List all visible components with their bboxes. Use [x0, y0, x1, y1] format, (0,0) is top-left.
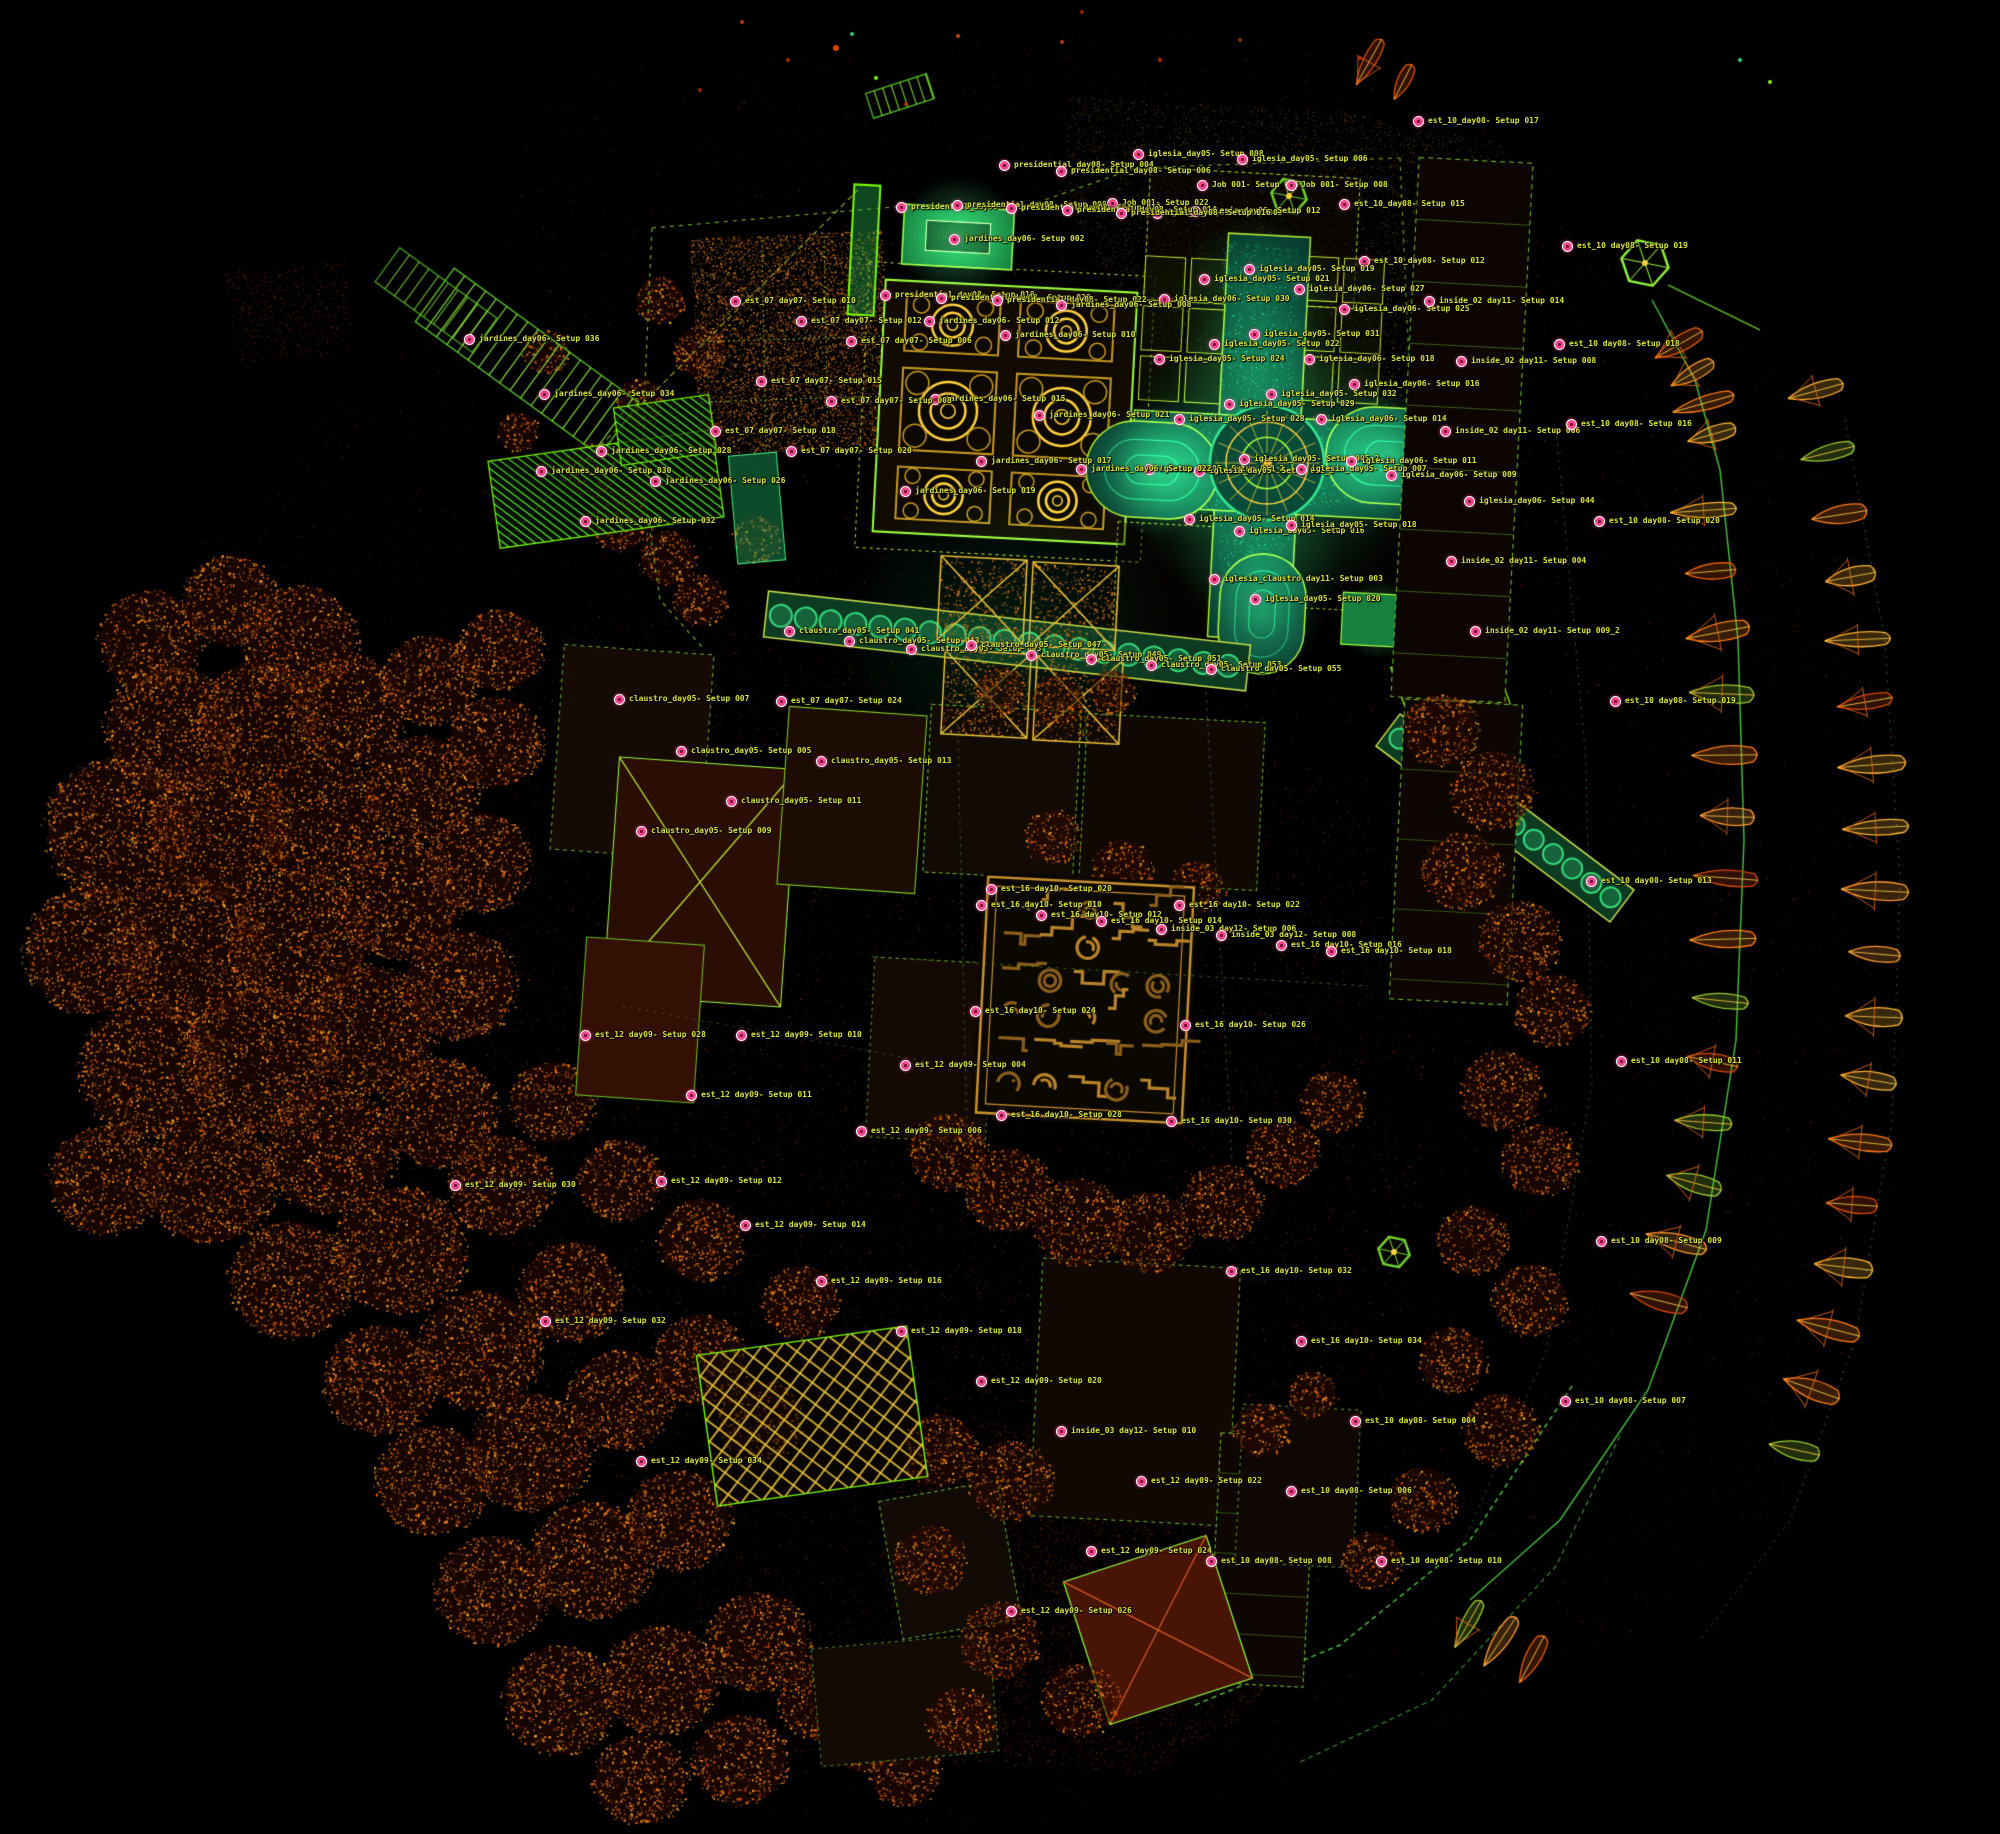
scan-setup-marker-icon: [906, 644, 917, 655]
scan-setup-label: iglesia_claustro day11- Setup 003: [1224, 574, 1383, 583]
scan-setup-marker[interactable]: est_12 day09- Setup 012: [656, 1176, 668, 1188]
scan-setup-marker-icon: [1180, 1020, 1191, 1031]
scan-setup-label: jardines_day06- Setup 034: [554, 389, 674, 398]
scan-setup-label: est_12 day09- Setup 018: [911, 1326, 1022, 1335]
scan-setup-marker-icon: [1339, 304, 1350, 315]
scan-setup-marker-icon: [1216, 930, 1227, 941]
scan-setup-marker[interactable]: est_12 day09- Setup 030: [450, 1180, 462, 1192]
scan-setup-label: est_10 day08- Setup 016: [1581, 419, 1692, 428]
scan-setup-marker[interactable]: est_07 day07- Setup 012: [796, 316, 808, 328]
scan-setup-marker[interactable]: est_16 day10- Setup 022: [1174, 900, 1186, 912]
scan-setup-marker[interactable]: jardines_day06- Setup 019: [900, 486, 912, 498]
scan-setup-marker[interactable]: est_12 day09- Setup 010: [736, 1030, 748, 1042]
scan-setup-label: iglesia_day06- Setup 011: [1361, 456, 1477, 465]
scan-setup-marker[interactable]: est_10 day08- Setup 016: [1566, 419, 1578, 431]
scan-setup-marker[interactable]: iglesia_day05- Setup 019: [1244, 264, 1256, 276]
scan-setup-label: inside_02 day11- Setup 009_2: [1485, 626, 1620, 635]
scan-setup-label: claustro_day05- Setup 005: [691, 746, 811, 755]
scan-setup-marker-icon: [786, 446, 797, 457]
scan-setup-label: presidential_day08- Setup 006: [1071, 166, 1211, 175]
scan-setup-marker[interactable]: presidential_day08- Setup 008: [952, 200, 964, 212]
scan-setup-label: claustro_day05- Setup 007: [629, 694, 749, 703]
scan-setup-marker[interactable]: est_10 day08- Setup 013: [1586, 876, 1598, 888]
scan-setup-marker[interactable]: est_07 day07- Setup 020: [786, 446, 798, 458]
scan-setup-label: est_10 day08- Setup 010: [1391, 1556, 1502, 1565]
scan-setup-marker-icon: [970, 1006, 981, 1017]
scan-setup-marker-icon: [1586, 876, 1597, 887]
scan-setup-marker[interactable]: est_07 day07- Setup 018: [710, 426, 722, 438]
scan-setup-marker-icon: [1000, 330, 1011, 341]
scan-setup-marker[interactable]: iglesia_day05- Setup 020: [1250, 594, 1262, 606]
scan-setup-marker[interactable]: iglesia_day05- Setup 021: [1199, 274, 1211, 286]
scan-setup-label: est_16 day10- Setup 024: [985, 1006, 1096, 1015]
scan-setup-marker[interactable]: jardines_day06- Setup 028: [596, 446, 608, 458]
scan-setup-label: est_12 day09- Setup 012: [671, 1176, 782, 1185]
scan-setup-label: jardines_day06- Setup 008: [1071, 300, 1191, 309]
scan-setup-marker-icon: [1136, 1476, 1147, 1487]
scan-setup-label: est_16 day10- Setup 028: [1011, 1110, 1122, 1119]
scan-setup-marker-icon: [896, 1326, 907, 1337]
scan-setup-marker-icon: [1376, 1556, 1387, 1567]
scan-setup-marker-icon: [1616, 1056, 1627, 1067]
scan-setup-marker[interactable]: est_10 day08- Setup 004: [1350, 1416, 1362, 1428]
scan-setup-marker[interactable]: est_12 day09- Setup 024: [1086, 1546, 1098, 1558]
scan-setup-marker-icon: [1237, 154, 1248, 165]
scan-setup-marker-icon: [1096, 916, 1107, 927]
scan-setup-marker[interactable]: est_07 day07- Setup 010: [730, 296, 742, 308]
scan-setup-label: est_16 day10- Setup 026: [1195, 1020, 1306, 1029]
scan-setup-marker-icon: [976, 1376, 987, 1387]
scan-setup-marker-icon: [986, 884, 997, 895]
scan-setup-marker[interactable]: iglesia_day05- Setup 005_2: [1239, 454, 1251, 466]
scan-setup-marker[interactable]: inside_02 day11- Setup 006: [1440, 426, 1452, 438]
scan-setup-marker[interactable]: est_07 day07- Setup 008: [826, 396, 838, 408]
scan-setup-label: iglesia_day06- Setup 016: [1364, 379, 1480, 388]
scan-setup-marker-icon: [1116, 208, 1127, 219]
scan-setup-label: claustro_day05- Setup 013: [831, 756, 951, 765]
scan-setup-label: est_10 day08- Setup 013: [1601, 876, 1712, 885]
scan-setup-label: est_07 day07- Setup 020: [801, 446, 912, 455]
scan-setup-marker-icon: [776, 696, 787, 707]
scan-setup-label: iglesia_day06- Setup 027: [1309, 284, 1425, 293]
scan-setup-marker-icon: [1326, 946, 1337, 957]
scan-setup-marker-icon: [726, 796, 737, 807]
scan-setup-marker[interactable]: est_10 day08- Setup 009: [1596, 1236, 1608, 1248]
scan-setup-marker[interactable]: est_07 day07- Setup 006: [846, 336, 858, 348]
scan-setup-marker-icon: [1154, 354, 1165, 365]
scan-setup-label: presidential_day08- Setup 016: [1131, 208, 1271, 217]
scan-setup-label: est_12 day09- Setup 014: [755, 1220, 866, 1229]
scan-setup-marker-icon: [846, 336, 857, 347]
scan-setup-marker[interactable]: jardines_day06- Setup 012: [924, 316, 936, 328]
scan-setup-marker[interactable]: presidential_day08- Setup 020: [936, 293, 948, 305]
scan-setup-marker[interactable]: iglesia_day05- Setup 032: [1266, 389, 1278, 401]
scan-setup-marker-icon: [966, 640, 977, 651]
scan-setup-marker[interactable]: iglesia_day06- Setup 014: [1316, 414, 1328, 426]
scan-setup-marker-icon: [952, 200, 963, 211]
scan-setup-marker[interactable]: jardines_day06- Setup 010: [1000, 330, 1012, 342]
scan-setup-marker[interactable]: claustro_day05- Setup 011: [726, 796, 738, 808]
scan-setup-marker[interactable]: claustro_day05- Setup 053: [1146, 660, 1158, 672]
scan-setup-marker[interactable]: est_10_day08- Setup 015: [1339, 199, 1351, 211]
scan-setup-label: claustro_day05- Setup 009: [651, 826, 771, 835]
scan-setup-label: claustro_day05- Setup 055: [1221, 664, 1341, 673]
scan-setup-marker[interactable]: est_07 day07- Setup 024: [776, 696, 788, 708]
scan-setup-marker[interactable]: jardines_day06- Setup 021: [1034, 410, 1046, 422]
scan-setup-marker[interactable]: inside_03 day12- Setup 006: [1156, 924, 1168, 936]
scan-setup-label: iglesia_day05- Setup 021: [1214, 274, 1330, 283]
scan-setup-marker[interactable]: inside_03 day12- Setup 010: [1056, 1426, 1068, 1438]
scan-setup-label: est_16 day10- Setup 032: [1241, 1266, 1352, 1275]
scan-setup-marker[interactable]: jardines_day06- Setup 008: [1056, 300, 1068, 312]
scan-setup-marker[interactable]: jardines_day06- Setup 026: [650, 476, 662, 488]
scan-setup-label: est_07 day07- Setup 010: [745, 296, 856, 305]
scan-setup-marker-icon: [976, 900, 987, 911]
scan-setup-marker-icon: [656, 1176, 667, 1187]
scan-setup-marker-icon: [900, 1060, 911, 1071]
scan-setup-marker[interactable]: claustro_day05- Setup 047: [966, 640, 978, 652]
scan-setup-marker[interactable]: est_10 day08- Setup 019: [1562, 241, 1574, 253]
scan-setup-marker-icon: [784, 626, 795, 637]
scan-setup-label: est_10 day08- Setup 020: [1609, 516, 1720, 525]
scan-setup-marker[interactable]: claustro_day05- Setup 055: [1206, 664, 1218, 676]
scan-setup-marker[interactable]: est_10 day08- Setup 018: [1554, 339, 1566, 351]
scan-setup-label: iglesia_day06- Setup 014: [1331, 414, 1447, 423]
scan-setup-marker[interactable]: iglesia_day05- Setup 024: [1154, 354, 1166, 366]
scan-setup-marker[interactable]: presidential_day08- Setup 022: [992, 295, 1004, 307]
scan-setup-marker[interactable]: est_12 day09- Setup 022: [1136, 1476, 1148, 1488]
scan-setup-marker-icon: [1206, 1556, 1217, 1567]
scan-setup-marker-icon: [650, 476, 661, 487]
scan-setup-marker-icon: [614, 694, 625, 705]
scan-setup-marker-icon: [1086, 654, 1097, 665]
scan-setup-marker-icon: [1244, 264, 1255, 275]
scan-setup-marker[interactable]: iglesia_day05- Setup 018: [1286, 520, 1298, 532]
scan-setup-marker-icon: [1286, 1486, 1297, 1497]
scan-setup-marker[interactable]: iglesia_day06- Setup 011: [1346, 456, 1358, 468]
scan-setup-marker-icon: [896, 202, 907, 213]
scan-setup-marker[interactable]: est_16 day10- Setup 034: [1296, 1336, 1308, 1348]
scan-setup-marker-icon: [1076, 464, 1087, 475]
scan-setup-label: iglesia_day05- Setup 006: [1252, 154, 1368, 163]
scan-setup-marker[interactable]: est_12 day09- Setup 006: [856, 1126, 868, 1138]
scan-setup-marker[interactable]: claustro_day05- Setup 007: [614, 694, 626, 706]
scan-setup-marker[interactable]: iglesia_day06- Setup 025: [1339, 304, 1351, 316]
scan-setup-label: est_12 day09- Setup 022: [1151, 1476, 1262, 1485]
scan-setup-marker[interactable]: jardines_day06- Setup 002: [949, 234, 961, 246]
scan-setup-marker-icon: [1286, 180, 1297, 191]
scan-setup-marker[interactable]: est_12 day09- Setup 028: [580, 1030, 592, 1042]
scan-setup-label: est_16 day10- Setup 020: [1001, 884, 1112, 893]
scan-setup-label: est_10 day08- Setup 019: [1625, 696, 1736, 705]
scan-setup-marker[interactable]: est_12 day09- Setup 026: [1006, 1606, 1018, 1618]
scan-setup-marker[interactable]: est_12 day09- Setup 011: [686, 1090, 698, 1102]
scan-setup-marker-icon: [730, 296, 741, 307]
scan-setup-marker-icon: [1226, 1266, 1237, 1277]
scan-setup-label: iglesia_day05- Setup 032: [1281, 389, 1397, 398]
scan-setup-marker-icon: [1446, 556, 1457, 567]
scan-setup-marker[interactable]: est_10 day08- Setup 008: [1206, 1556, 1218, 1568]
scan-setup-marker[interactable]: est_10_day08- Setup 017: [1413, 116, 1425, 128]
scan-setup-label: est_12 day09- Setup 032: [555, 1316, 666, 1325]
scan-setup-marker[interactable]: claustro_day05- Setup 051: [1086, 654, 1098, 666]
scan-setup-marker-icon: [1006, 1606, 1017, 1617]
scan-setup-marker-icon: [539, 389, 550, 400]
scan-setup-marker[interactable]: est_16 day10- Setup 030: [1166, 1116, 1178, 1128]
scan-setup-marker[interactable]: iglesia_day05- Setup 007: [1296, 464, 1308, 476]
scan-setup-marker[interactable]: est_12 day09- Setup 016: [816, 1276, 828, 1288]
scan-setup-label: claustro_day05- Setup 047: [981, 640, 1101, 649]
scan-setup-marker-icon: [1234, 526, 1245, 537]
scan-setup-marker[interactable]: iglesia_day06- Setup 044: [1464, 496, 1476, 508]
scan-setup-marker-icon: [826, 396, 837, 407]
scan-setup-label: inside_03 day12- Setup 010: [1071, 1426, 1196, 1435]
scan-setup-label: est_12 day09- Setup 030: [465, 1180, 576, 1189]
scan-setup-label: jardines_day06- Setup 026: [665, 476, 785, 485]
scan-setup-marker-icon: [1456, 356, 1467, 367]
scan-setup-marker-icon: [996, 1110, 1007, 1121]
scan-setup-label: jardines_day06- Setup 010: [1015, 330, 1135, 339]
scan-setup-marker-icon: [676, 746, 687, 757]
scan-setup-marker-icon: [1386, 470, 1397, 481]
scan-setup-marker[interactable]: est_16 day10- Setup 016: [1276, 940, 1288, 952]
scan-setup-marker-icon: [1250, 594, 1261, 605]
scan-setup-marker[interactable]: jardines_day06- Setup 030: [536, 466, 548, 478]
scan-setup-label: est_16 day10- Setup 022: [1189, 900, 1300, 909]
scan-setup-label: est_07 day07- Setup 008: [841, 396, 952, 405]
scan-setup-marker[interactable]: est_10 day08- Setup 019: [1610, 696, 1622, 708]
scan-setup-label: est_16 day10- Setup 030: [1181, 1116, 1292, 1125]
scan-setup-label: inside_02 day11- Setup 004: [1461, 556, 1586, 565]
scan-setup-marker-icon: [686, 1090, 697, 1101]
scan-setup-label: claustro_day05- Setup 011: [741, 796, 861, 805]
scan-setup-marker[interactable]: iglesia_day05- Setup 028: [1174, 414, 1186, 426]
scan-setup-label: jardines_day06- Setup 030: [551, 466, 671, 475]
scan-setup-marker[interactable]: presidential_day08- Setup 018: [880, 290, 892, 302]
scan-setup-marker-icon: [1209, 574, 1220, 585]
scan-setup-label: est_12 day09- Setup 020: [991, 1376, 1102, 1385]
scan-setup-marker[interactable]: Job 001- Setup 008: [1286, 180, 1298, 192]
scan-setup-marker[interactable]: Job 001- Setup 004: [1197, 180, 1209, 192]
scan-setup-marker-icon: [580, 1030, 591, 1041]
scan-setup-marker[interactable]: est_10 day08- Setup 006: [1286, 1486, 1298, 1498]
scan-setup-marker-icon: [900, 486, 911, 497]
scan-setup-label: est_10 day08- Setup 007: [1575, 1396, 1686, 1405]
scan-setup-marker-icon: [1464, 496, 1475, 507]
scan-setup-marker[interactable]: est_12 day09- Setup 032: [540, 1316, 552, 1328]
scan-setup-marker[interactable]: claustro_day05- Setup 043: [844, 636, 856, 648]
scan-setup-marker-icon: [856, 1126, 867, 1137]
scan-setup-label: iglesia_day05- Setup 024: [1169, 354, 1285, 363]
scan-setup-marker-icon: [936, 293, 947, 304]
scan-setup-marker[interactable]: est_12 day09- Setup 014: [740, 1220, 752, 1232]
scan-setup-label: iglesia_day06- Setup 018: [1319, 354, 1435, 363]
scan-setup-marker[interactable]: est_16 day10- Setup 028: [996, 1110, 1008, 1122]
scan-setup-marker-icon: [1266, 389, 1277, 400]
scan-setup-marker[interactable]: iglesia_day05- Setup 006: [1237, 154, 1249, 166]
scan-setup-marker[interactable]: est_16 day10- Setup 012: [1036, 910, 1048, 922]
scan-setup-marker-icon: [1249, 329, 1260, 340]
scan-setup-marker-icon: [450, 1180, 461, 1191]
scan-setup-label: inside_03 day12- Setup 008: [1231, 930, 1356, 939]
scan-setup-marker-icon: [1286, 520, 1297, 531]
scan-setup-marker-icon: [1026, 650, 1037, 661]
scan-setup-marker-icon: [1610, 696, 1621, 707]
scan-setup-marker[interactable]: est_16 day10- Setup 024: [970, 1006, 982, 1018]
scan-setup-marker[interactable]: est_16 day10- Setup 032: [1226, 1266, 1238, 1278]
scan-setup-marker[interactable]: est_12 day09- Setup 018: [896, 1326, 908, 1338]
scan-setup-marker[interactable]: est_16 day10- Setup 014: [1096, 916, 1108, 928]
scan-setup-marker-icon: [536, 466, 547, 477]
scan-setup-marker[interactable]: inside_02 day11- Setup 004: [1446, 556, 1458, 568]
scan-setup-marker-icon: [844, 636, 855, 647]
scan-setup-marker[interactable]: presidential_day08- Setup 010: [896, 202, 908, 214]
scan-setup-label: jardines_day06- Setup 028: [611, 446, 731, 455]
scan-setup-marker[interactable]: iglesia_day06- Setup 009: [1386, 470, 1398, 482]
scan-setup-marker[interactable]: iglesia_day05- Setup 031: [1249, 329, 1261, 341]
scan-setup-marker-icon: [1239, 454, 1250, 465]
scan-setup-marker-icon: [1036, 910, 1047, 921]
scan-setup-marker[interactable]: est_16 day10- Setup 020: [986, 884, 998, 896]
scan-setup-label: est_16 day10- Setup 034: [1311, 1336, 1422, 1345]
scan-setup-marker[interactable]: claustro_day05- Setup 013: [816, 756, 828, 768]
scan-setup-marker-icon: [1166, 1116, 1177, 1127]
scan-setup-marker[interactable]: jardines_day06- Setup 032: [580, 516, 592, 528]
scan-setup-marker-icon: [1006, 203, 1017, 214]
scan-setup-marker[interactable]: claustro_day05- Setup 049: [1026, 650, 1038, 662]
scan-setup-marker-icon: [1346, 456, 1357, 467]
scan-setup-marker[interactable]: est_12 day09- Setup 004: [900, 1060, 912, 1072]
scan-setup-marker[interactable]: est_16 day10- Setup 010: [976, 900, 988, 912]
scan-setup-label: est_12 day09- Setup 010: [751, 1030, 862, 1039]
scan-setup-marker[interactable]: presidential_day08- Setup 012: [1006, 203, 1018, 215]
scan-setup-marker-icon: [949, 234, 960, 245]
scan-setup-marker-icon: [736, 1030, 747, 1041]
scan-setup-label: jardines_day06- Setup 019: [915, 486, 1035, 495]
scan-setup-marker-icon: [1440, 426, 1451, 437]
scan-setup-marker[interactable]: claustro_day05- Setup 009: [636, 826, 648, 838]
scan-setup-marker[interactable]: jardines_day06- Setup 017: [976, 456, 988, 468]
scan-setup-marker[interactable]: iglesia_claustro day11- Setup 003: [1209, 574, 1221, 586]
scan-setup-marker[interactable]: iglesia_day05- Setup 029: [1224, 399, 1236, 411]
scan-setup-marker[interactable]: inside_02 day11- Setup 008: [1456, 356, 1468, 368]
scan-setup-marker[interactable]: est_12 day09- Setup 020: [976, 1376, 988, 1388]
scan-setup-label: est_10 day08- Setup 019: [1577, 241, 1688, 250]
scan-setup-label: est_12 day09- Setup 016: [831, 1276, 942, 1285]
scan-setup-marker-icon: [816, 756, 827, 767]
scan-setup-marker-icon: [1056, 300, 1067, 311]
scan-setup-marker[interactable]: est_10 day08- Setup 010: [1376, 1556, 1388, 1568]
scan-setup-marker-icon: [1339, 199, 1350, 210]
scan-setup-marker[interactable]: inside_03 day12- Setup 008: [1216, 930, 1228, 942]
scan-setup-marker-icon: [992, 295, 1003, 306]
scan-setup-label: est_12 day09- Setup 006: [871, 1126, 982, 1135]
scan-setup-label: iglesia_day05- Setup 028: [1189, 414, 1305, 423]
scan-setup-label: est_10 day08- Setup 006: [1301, 1486, 1412, 1495]
scan-setup-label: est_10_day08- Setup 015: [1354, 199, 1465, 208]
scan-setup-label: inside_02 day11- Setup 008: [1471, 356, 1596, 365]
scan-setup-label: est_16 day10- Setup 010: [991, 900, 1102, 909]
scan-setup-label: est_10 day08- Setup 011: [1631, 1056, 1742, 1065]
scan-setup-marker[interactable]: presidential_day08- Setup 014: [1062, 205, 1074, 217]
scan-setup-marker-icon: [1224, 399, 1235, 410]
scan-setup-marker-icon: [1304, 354, 1315, 365]
scan-setup-label: iglesia_day05- Setup 031: [1264, 329, 1380, 338]
scan-setup-label: jardines_day06- Setup 015: [945, 394, 1065, 403]
scan-setup-marker[interactable]: iglesia_day06- Setup 018: [1304, 354, 1316, 366]
scan-setup-label: est_12 day09- Setup 028: [595, 1030, 706, 1039]
scan-setup-label: inside_02 day11- Setup 014: [1439, 296, 1564, 305]
scan-setup-label: est_10 day08- Setup 009: [1611, 1236, 1722, 1245]
scan-setup-label: iglesia_day05- Setup 029: [1239, 399, 1355, 408]
scan-setup-marker-icon: [740, 1220, 751, 1231]
scan-setup-marker-icon: [1566, 419, 1577, 430]
scan-setup-marker[interactable]: claustro_day05- Setup 005: [676, 746, 688, 758]
scan-setup-label: iglesia_day06- Setup 009: [1401, 470, 1517, 479]
scan-setup-marker[interactable]: est_12 day09- Setup 034: [636, 1456, 648, 1468]
scan-setup-marker-icon: [1133, 149, 1144, 160]
scan-setup-marker[interactable]: jardines_day06- Setup 036: [464, 334, 476, 346]
scan-setup-marker[interactable]: est_10 day08- Setup 020: [1594, 516, 1606, 528]
scan-setup-marker[interactable]: claustro_day05- Setup 041: [784, 626, 796, 638]
scan-setup-marker[interactable]: presidential_day08- Setup 006: [1056, 166, 1068, 178]
scan-setup-label: jardines_day06- Setup 021: [1049, 410, 1169, 419]
scan-setup-label: est_12 day09- Setup 024: [1101, 1546, 1212, 1555]
scan-setup-marker-icon: [1174, 414, 1185, 425]
scan-setup-marker-icon: [540, 1316, 551, 1327]
scan-setup-marker[interactable]: inside_02 day11- Setup 014: [1424, 296, 1436, 308]
scan-setup-marker-icon: [1174, 900, 1185, 911]
scan-setup-marker[interactable]: presidential_day08- Setup 016: [1116, 208, 1128, 220]
scan-setup-marker-icon: [636, 1456, 647, 1467]
scan-setup-marker-icon: [1413, 116, 1424, 127]
scan-setup-marker-icon: [1596, 1236, 1607, 1247]
scan-setup-marker[interactable]: presidential_day08- Setup 004: [999, 160, 1011, 172]
scan-setup-label: claustro_day05- Setup 041: [799, 626, 919, 635]
scan-setup-marker-icon: [636, 826, 647, 837]
scan-setup-marker[interactable]: est_10 day08- Setup 011: [1616, 1056, 1628, 1068]
scan-setup-marker[interactable]: inside_02 day11- Setup 009_2: [1470, 626, 1482, 638]
scan-setup-marker-icon: [1554, 339, 1565, 350]
scan-setup-marker[interactable]: iglesia_day05- Setup 014: [1184, 514, 1196, 526]
scan-setup-label: iglesia_day05- Setup 018: [1301, 520, 1417, 529]
scan-setup-marker[interactable]: jardines_day06- Setup 022: [1076, 464, 1088, 476]
scan-setup-marker-icon: [816, 1276, 827, 1287]
scan-setup-marker[interactable]: est_16 day10- Setup 026: [1180, 1020, 1192, 1032]
scan-setup-label: est_10 day08- Setup 004: [1365, 1416, 1476, 1425]
scan-setup-marker-icon: [1086, 1546, 1097, 1557]
scan-setup-marker-icon: [976, 456, 987, 467]
scan-setup-marker[interactable]: iglesia_day05- Setup 016: [1234, 526, 1246, 538]
scan-setup-label: iglesia_day05- Setup 020: [1265, 594, 1381, 603]
scan-setup-marker[interactable]: iglesia_day05- Setup 022: [1209, 339, 1221, 351]
scan-setup-marker-icon: [1316, 414, 1327, 425]
scan-setup-marker-icon: [1470, 626, 1481, 637]
scan-setup-label: jardines_day06- Setup 032: [595, 516, 715, 525]
scan-setup-marker[interactable]: jardines_day06- Setup 034: [539, 389, 551, 401]
scan-setup-marker[interactable]: iglesia_day06- Setup 027: [1294, 284, 1306, 296]
scan-setup-marker-icon: [596, 446, 607, 457]
scan-setup-marker-icon: [1209, 339, 1220, 350]
scan-setup-label: est_10 day08- Setup 018: [1569, 339, 1680, 348]
scan-setup-marker[interactable]: est_07 day07- Setup 015: [756, 376, 768, 388]
scan-setup-marker-icon: [1056, 166, 1067, 177]
scan-setup-marker[interactable]: claustro_day05- Setup 045: [906, 644, 918, 656]
scan-setup-marker[interactable]: est_10 day08- Setup 007: [1560, 1396, 1572, 1408]
scan-setup-marker-icon: [1594, 516, 1605, 527]
scan-setup-marker-icon: [1034, 410, 1045, 421]
scan-setup-marker[interactable]: est_16 day10- Setup 018: [1326, 946, 1338, 958]
